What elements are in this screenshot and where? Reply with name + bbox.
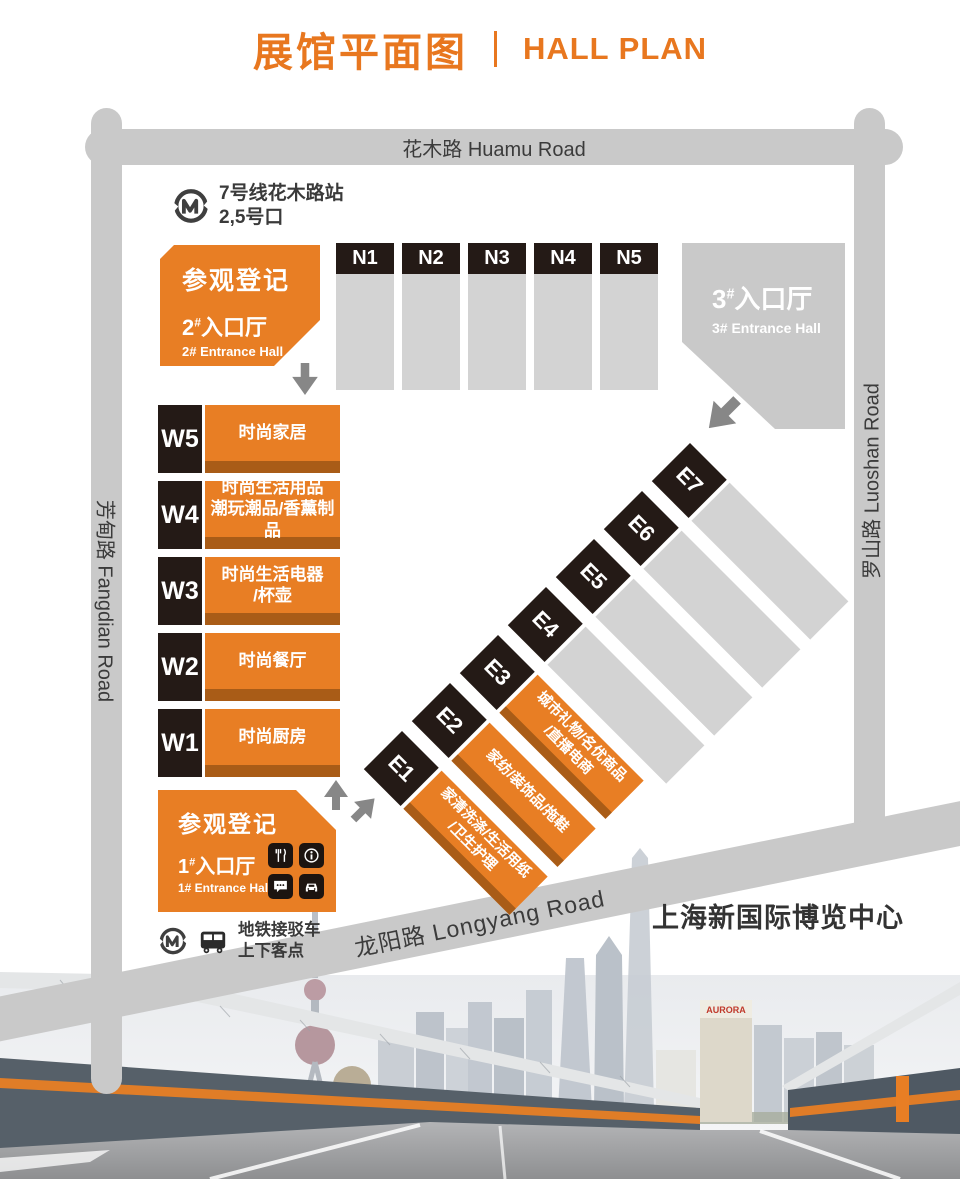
- hall-label: W3: [158, 557, 202, 625]
- metro-station-line1: 7号线花木路站: [219, 182, 344, 206]
- road-huamu: 花木路 Huamu Road: [85, 129, 903, 165]
- shuttle-line1: 地铁接驳车: [238, 920, 321, 941]
- hall-label: W1: [158, 709, 202, 777]
- hall-label: N4: [534, 243, 592, 274]
- hall-label: N5: [600, 243, 658, 274]
- hall-W3: W3 时尚生活电器/杯壶: [158, 557, 340, 625]
- service-icons: [268, 843, 324, 899]
- hall-body: [336, 274, 394, 390]
- hall-N5: N5: [600, 243, 658, 390]
- info-icon: [299, 843, 324, 868]
- shuttle-text: 地铁接驳车 上下客点: [238, 920, 321, 961]
- road-fangdian: 芳甸路 Fangdian Road: [91, 108, 122, 1094]
- title-chinese: 展馆平面图: [253, 20, 468, 78]
- hall-W2: W2 时尚餐厅: [158, 633, 340, 701]
- hall-category: 时尚生活电器/杯壶: [205, 557, 340, 625]
- hall-W4: W4 时尚生活用品潮玩潮品/香薰制品: [158, 481, 340, 549]
- hall-N4: N4: [534, 243, 592, 390]
- hall-body: [468, 274, 526, 390]
- page-title: 展馆平面图 HALL PLAN: [0, 20, 960, 78]
- hall-N1: N1: [336, 243, 394, 390]
- hall-category: 时尚厨房: [205, 709, 340, 777]
- entrance-2-name: 2#入口厅: [182, 310, 320, 342]
- hall-W5: W5 时尚家居: [158, 405, 340, 473]
- title-divider: [494, 31, 497, 67]
- shuttle-note: 地铁接驳车 上下客点: [158, 920, 321, 961]
- hall-N3: N3: [468, 243, 526, 390]
- arrow-up-icon: [324, 780, 348, 810]
- hall-label: N2: [402, 243, 460, 274]
- shanghai-metro-logo-icon: [172, 187, 210, 225]
- hall-category: 时尚家居: [205, 405, 340, 473]
- road-luoshan-label: 罗山路 Luoshan Road: [855, 383, 884, 579]
- hall-body: [534, 274, 592, 390]
- chat-icon: [268, 874, 293, 899]
- hall-plan-map: 展馆平面图 HALL PLAN: [0, 0, 960, 1179]
- hall-label: W4: [158, 481, 202, 549]
- hall-category: 时尚餐厅: [205, 633, 340, 701]
- hall-N2: N2: [402, 243, 460, 390]
- hall-label: N1: [336, 243, 394, 274]
- restaurant-icon: [268, 843, 293, 868]
- bus-icon: [197, 926, 229, 956]
- shanghai-metro-logo-icon: [158, 926, 188, 956]
- hall-category: 时尚生活用品潮玩潮品/香薰制品: [205, 481, 340, 549]
- entrance-3-name: 3#入口厅: [712, 279, 845, 316]
- shuttle-line2: 上下客点: [238, 941, 321, 962]
- entrance-3-name-en: 3# Entrance Hall: [712, 320, 845, 336]
- hall-body: [600, 274, 658, 390]
- entrance-2-name-en: 2# Entrance Hall: [182, 344, 320, 359]
- hall-label: W5: [158, 405, 202, 473]
- metro-station-note: 7号线花木路站 2,5号口: [172, 182, 344, 230]
- road-fangdian-label: 芳甸路 Fangdian Road: [92, 500, 121, 702]
- register-label: 参观登记: [178, 805, 336, 839]
- arrow-down-icon: [292, 363, 318, 395]
- road-huamu-label: 花木路 Huamu Road: [402, 133, 585, 162]
- hall-label: N3: [468, 243, 526, 274]
- entrance-hall-1: 参观登记 1#入口厅 1# Entrance Hall: [158, 790, 336, 912]
- aurora-sign: AURORA: [706, 1005, 746, 1015]
- taxi-icon: [299, 874, 324, 899]
- entrance-hall-2: 参观登记 2#入口厅 2# Entrance Hall: [160, 245, 320, 366]
- title-english: HALL PLAN: [523, 31, 707, 67]
- metro-station-text: 7号线花木路站 2,5号口: [219, 182, 344, 230]
- aurora-building: AURORA: [700, 1000, 752, 1122]
- venue-name: 上海新国际博览中心: [652, 896, 904, 935]
- hall-body: [402, 274, 460, 390]
- hall-W1: W1 时尚厨房: [158, 709, 340, 777]
- register-label: 参观登记: [182, 261, 320, 297]
- entrance-hall-3: 3#入口厅 3# Entrance Hall: [682, 243, 845, 429]
- road-luoshan: 罗山路 Luoshan Road: [854, 108, 885, 854]
- arrow-northeast-icon: [343, 788, 384, 829]
- metro-station-line2: 2,5号口: [219, 206, 344, 230]
- hall-label: W2: [158, 633, 202, 701]
